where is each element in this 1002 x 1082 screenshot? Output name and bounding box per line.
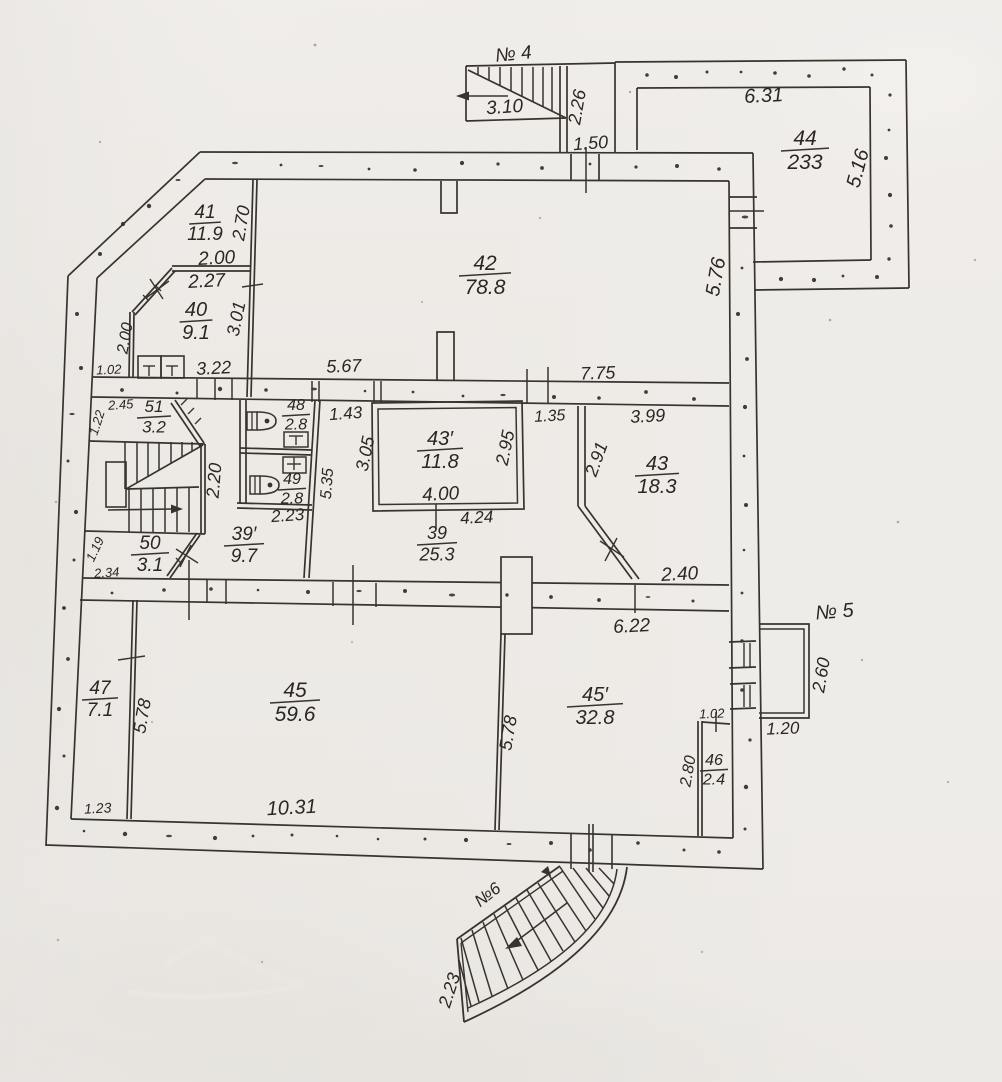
svg-text:1.20: 1.20 bbox=[766, 718, 800, 738]
svg-text:11.9: 11.9 bbox=[187, 224, 223, 245]
svg-text:4.24: 4.24 bbox=[460, 507, 494, 528]
svg-text:2.00: 2.00 bbox=[197, 247, 236, 270]
svg-text:1.35: 1.35 bbox=[534, 407, 566, 426]
svg-text:2.23: 2.23 bbox=[269, 505, 305, 526]
svg-text:2.20: 2.20 bbox=[202, 462, 225, 500]
svg-text:2.34: 2.34 bbox=[93, 564, 120, 581]
svg-text:39: 39 bbox=[427, 523, 447, 543]
svg-text:3.10: 3.10 bbox=[485, 96, 524, 120]
svg-text:233: 233 bbox=[786, 151, 822, 174]
svg-text:2.45: 2.45 bbox=[107, 396, 135, 413]
svg-text:43: 43 bbox=[646, 453, 668, 475]
svg-text:47: 47 bbox=[89, 678, 112, 699]
svg-text:39′: 39′ bbox=[232, 524, 258, 545]
svg-text:№ 4: № 4 bbox=[494, 42, 532, 67]
svg-text:44: 44 bbox=[793, 127, 816, 150]
svg-text:59.6: 59.6 bbox=[275, 703, 316, 726]
svg-text:48: 48 bbox=[287, 397, 305, 414]
svg-text:1.50: 1.50 bbox=[572, 132, 608, 154]
svg-text:9.7: 9.7 bbox=[231, 546, 259, 567]
svg-text:46: 46 bbox=[705, 752, 723, 769]
svg-text:3.1: 3.1 bbox=[137, 555, 163, 576]
svg-text:4.00: 4.00 bbox=[422, 483, 460, 506]
svg-text:9.1: 9.1 bbox=[182, 322, 210, 344]
svg-text:3.22: 3.22 bbox=[196, 357, 232, 379]
svg-text:25.3: 25.3 bbox=[418, 544, 454, 564]
svg-text:50: 50 bbox=[139, 533, 161, 554]
svg-text:2.4: 2.4 bbox=[702, 772, 725, 789]
svg-text:78.8: 78.8 bbox=[465, 276, 506, 299]
svg-text:2.27: 2.27 bbox=[187, 270, 227, 293]
svg-text:11.8: 11.8 bbox=[421, 451, 458, 473]
svg-text:1.23: 1.23 bbox=[84, 799, 112, 816]
svg-text:40: 40 bbox=[185, 299, 207, 321]
svg-text:7.1: 7.1 bbox=[87, 700, 113, 721]
svg-text:5.67: 5.67 bbox=[326, 355, 363, 376]
svg-text:3.2: 3.2 bbox=[142, 417, 166, 436]
svg-text:18.3: 18.3 bbox=[638, 476, 677, 498]
svg-text:10.31: 10.31 bbox=[266, 796, 317, 821]
svg-text:6.31: 6.31 bbox=[744, 84, 784, 108]
svg-text:2.8: 2.8 bbox=[284, 417, 307, 434]
svg-text:42: 42 bbox=[473, 252, 497, 275]
svg-text:45′: 45′ bbox=[582, 684, 609, 706]
svg-text:1.02: 1.02 bbox=[96, 362, 123, 378]
svg-text:5.35: 5.35 bbox=[318, 467, 337, 499]
svg-text:7.75: 7.75 bbox=[580, 362, 617, 383]
svg-text:2.40: 2.40 bbox=[660, 563, 699, 586]
svg-text:1.43: 1.43 bbox=[328, 403, 363, 424]
svg-text:3.99: 3.99 bbox=[630, 405, 666, 427]
svg-text:41: 41 bbox=[194, 202, 215, 223]
svg-text:1.02: 1.02 bbox=[699, 706, 726, 722]
svg-text:32.8: 32.8 bbox=[576, 707, 615, 729]
svg-text:49: 49 bbox=[283, 471, 301, 488]
svg-text:6.22: 6.22 bbox=[613, 615, 651, 638]
svg-text:43′: 43′ bbox=[427, 428, 454, 450]
svg-text:№ 5: № 5 bbox=[814, 599, 855, 624]
svg-text:51: 51 bbox=[145, 397, 164, 416]
svg-text:45: 45 bbox=[283, 679, 307, 702]
